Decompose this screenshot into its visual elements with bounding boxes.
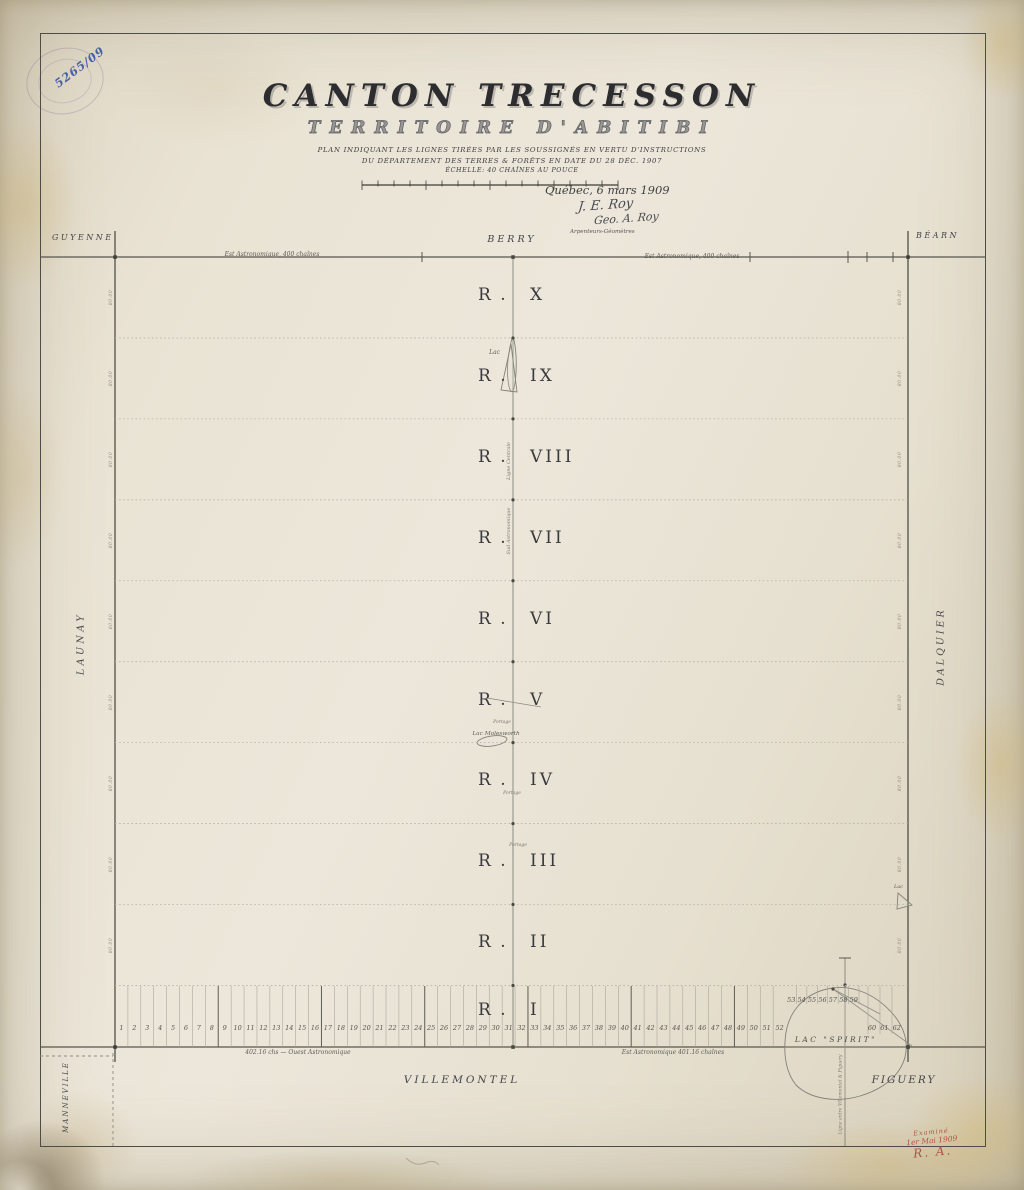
lot-number-24: 24 (412, 1024, 424, 1032)
lot-number-29: 29 (477, 1024, 489, 1032)
boundary-chainage-label: 80.00 (109, 856, 114, 871)
lot-number-11: 11 (245, 1024, 257, 1032)
range-numeral: I (530, 1000, 540, 1020)
annotation-portage-1: Portage (487, 720, 517, 725)
range-label-iv: R .IV (478, 770, 508, 790)
lot-number-39: 39 (606, 1024, 618, 1032)
lot-number-2: 2 (128, 1024, 140, 1032)
boundary-chainage-label: 80.00 (109, 290, 114, 305)
lot-number-25: 25 (425, 1024, 437, 1032)
range-label-ii: R .II (478, 932, 508, 952)
lot-number-40: 40 (619, 1024, 631, 1032)
boundary-chainage-label: 80.00 (898, 533, 903, 548)
boundary-chainage-label: 80.00 (898, 694, 903, 709)
lot-number-51: 51 (761, 1024, 773, 1032)
range-prefix: R . (478, 285, 508, 305)
lot-number-50: 50 (748, 1024, 760, 1032)
map-subtitle: TERRITOIRE D'ABITIBI (0, 118, 1024, 138)
range-prefix: R . (478, 447, 508, 467)
stain (180, 1150, 500, 1190)
lot-number-34: 34 (541, 1024, 553, 1032)
lot-number-35: 35 (554, 1024, 566, 1032)
range-prefix: R . (478, 932, 508, 952)
lot-number-15: 15 (296, 1024, 308, 1032)
range-prefix: R . (478, 770, 508, 790)
lot-number-1: 1 (115, 1024, 127, 1032)
lot-number-3: 3 (141, 1024, 153, 1032)
map-border-frame (40, 33, 986, 1147)
boundary-chainage-label: 80.00 (109, 452, 114, 467)
range-numeral: X (530, 285, 545, 305)
lake-label-spirit: LAC "SPIRIT" (776, 1035, 896, 1044)
place-and-date: Québec, 6 mars 1909 (545, 183, 670, 197)
boundary-chainage-label: 80.00 (898, 614, 903, 629)
lot-number-28: 28 (464, 1024, 476, 1032)
lot-number-52: 52 (774, 1024, 786, 1032)
neighbor-manneville: MANNEVILLE (62, 1042, 70, 1152)
lot-number-18: 18 (335, 1024, 347, 1032)
lot-number-13: 13 (270, 1024, 282, 1032)
boundary-chainage-label: 80.00 (109, 614, 114, 629)
boundary-chainage-label: 80.00 (898, 371, 903, 386)
annotation-canton-boundary-line: Ligne entre Villemontel & Figuery (839, 1040, 844, 1150)
lot-number-45: 45 (683, 1024, 695, 1032)
neighbor-figuery: FIGUERY (844, 1074, 964, 1086)
lot-number-37: 37 (580, 1024, 592, 1032)
range-label-ix: R .IX (478, 366, 508, 386)
lot-number-49: 49 (735, 1024, 747, 1032)
range-numeral: VI (530, 609, 555, 629)
lot-number-12: 12 (257, 1024, 269, 1032)
range-numeral: III (530, 851, 559, 871)
lot-number-10: 10 (232, 1024, 244, 1032)
range-numeral: VII (530, 528, 565, 548)
lot-number-4: 4 (154, 1024, 166, 1032)
lot-number-17: 17 (322, 1024, 334, 1032)
lot-number-59: 59 (848, 996, 860, 1004)
lot-number-21: 21 (374, 1024, 386, 1032)
neighbor-bearn: BÉARN (916, 231, 959, 240)
lot-number-44: 44 (670, 1024, 682, 1032)
scale-label: ÉCHELLE: 40 CHAÎNES AU POUCE (0, 167, 1024, 174)
range-label-i: R .I (478, 1000, 508, 1020)
lot-number-27: 27 (451, 1024, 463, 1032)
neighbor-berry: BERRY (0, 234, 1024, 245)
lot-number-14: 14 (283, 1024, 295, 1032)
boundary-chainage-label: 80.00 (109, 694, 114, 709)
lot-number-8: 8 (206, 1024, 218, 1032)
range-prefix: R . (478, 851, 508, 871)
pencil-mark (406, 1158, 439, 1165)
boundary-chainage-label: 80.00 (898, 290, 903, 305)
lot-number-38: 38 (593, 1024, 605, 1032)
boundary-chainage-label: 80.00 (109, 533, 114, 548)
lot-number-32: 32 (516, 1024, 528, 1032)
range-label-vi: R .VI (478, 609, 508, 629)
range-prefix: R . (478, 528, 508, 548)
lot-number-9: 9 (219, 1024, 231, 1032)
range-label-vii: R .VII (478, 528, 508, 548)
lot-number-30: 30 (490, 1024, 502, 1032)
lot-number-47: 47 (709, 1024, 721, 1032)
range-prefix: R . (478, 690, 508, 710)
lot-number-61: 61 (878, 1024, 890, 1032)
lot-number-20: 20 (361, 1024, 373, 1032)
neighbor-dalquier: DALQUIER (936, 587, 947, 707)
lake-label-east: Lac (894, 884, 903, 890)
lot-number-60: 60 (866, 1024, 878, 1032)
lot-number-36: 36 (567, 1024, 579, 1032)
lot-number-26: 26 (438, 1024, 450, 1032)
boundary-chainage-label: 80.00 (898, 775, 903, 790)
lot-number-31: 31 (503, 1024, 515, 1032)
boundary-chainage-label: 80.00 (109, 775, 114, 790)
lot-number-46: 46 (696, 1024, 708, 1032)
lot-number-62: 62 (891, 1024, 903, 1032)
range-numeral: II (530, 932, 549, 952)
neighbor-launay: LAUNAY (76, 584, 87, 704)
lot-number-16: 16 (309, 1024, 321, 1032)
range-numeral: V (530, 690, 545, 710)
lot-number-5: 5 (167, 1024, 179, 1032)
lot-number-48: 48 (722, 1024, 734, 1032)
annotation-top-line-west: Est Astronomique, 400 chaînes (192, 251, 352, 258)
lot-number-42: 42 (645, 1024, 657, 1032)
range-prefix: R . (478, 1000, 508, 1020)
range-prefix: R . (478, 609, 508, 629)
map-title: CANTON TRECESSON (0, 78, 1024, 114)
plan-description-line2: DU DÉPARTEMENT DES TERRES & FORÊTS EN DA… (0, 157, 1024, 165)
annotation-portage-2: Portage (497, 791, 527, 796)
lake-label-molesworth: Lac Molesworth (446, 731, 546, 737)
range-numeral: IX (530, 366, 555, 386)
annotation-portage-3: Portage (503, 843, 533, 848)
lot-number-33: 33 (528, 1024, 540, 1032)
boundary-chainage-label: 80.00 (109, 937, 114, 952)
plan-description-line1: PLAN INDIQUANT LES LIGNES TIRÉES PAR LES… (0, 146, 1024, 154)
range-label-v: R .V (478, 690, 508, 710)
annotation-bottom-line-west: 402.16 chs — Ouest Astronomique (218, 1049, 378, 1056)
lot-number-7: 7 (193, 1024, 205, 1032)
stain (0, 1160, 55, 1190)
lot-number-23: 23 (399, 1024, 411, 1032)
boundary-chainage-label: 80.00 (109, 371, 114, 386)
lake-label-centre: Lac (470, 349, 500, 356)
range-label-x: R .X (478, 285, 508, 305)
lot-number-6: 6 (180, 1024, 192, 1032)
lot-number-41: 41 (632, 1024, 644, 1032)
range-numeral: IV (530, 770, 555, 790)
annotation-top-line-east: Est Astronomique, 400 chaînes (612, 253, 772, 260)
range-label-viii: R .VIII (478, 447, 508, 467)
lot-number-43: 43 (657, 1024, 669, 1032)
paper-background: 5265/09 (0, 0, 1024, 1190)
annotation-bottom-line-east: Est Astronomique 401.16 chaînes (593, 1049, 753, 1056)
lot-number-19: 19 (348, 1024, 360, 1032)
boundary-chainage-label: 80.00 (898, 937, 903, 952)
range-label-iii: R .III (478, 851, 508, 871)
lot-number-22: 22 (386, 1024, 398, 1032)
range-prefix: R . (478, 366, 508, 386)
boundary-chainage-label: 80.00 (898, 856, 903, 871)
range-numeral: VIII (530, 447, 574, 467)
boundary-chainage-label: 80.00 (898, 452, 903, 467)
neighbor-villemontel: VILLEMONTEL (362, 1074, 562, 1086)
